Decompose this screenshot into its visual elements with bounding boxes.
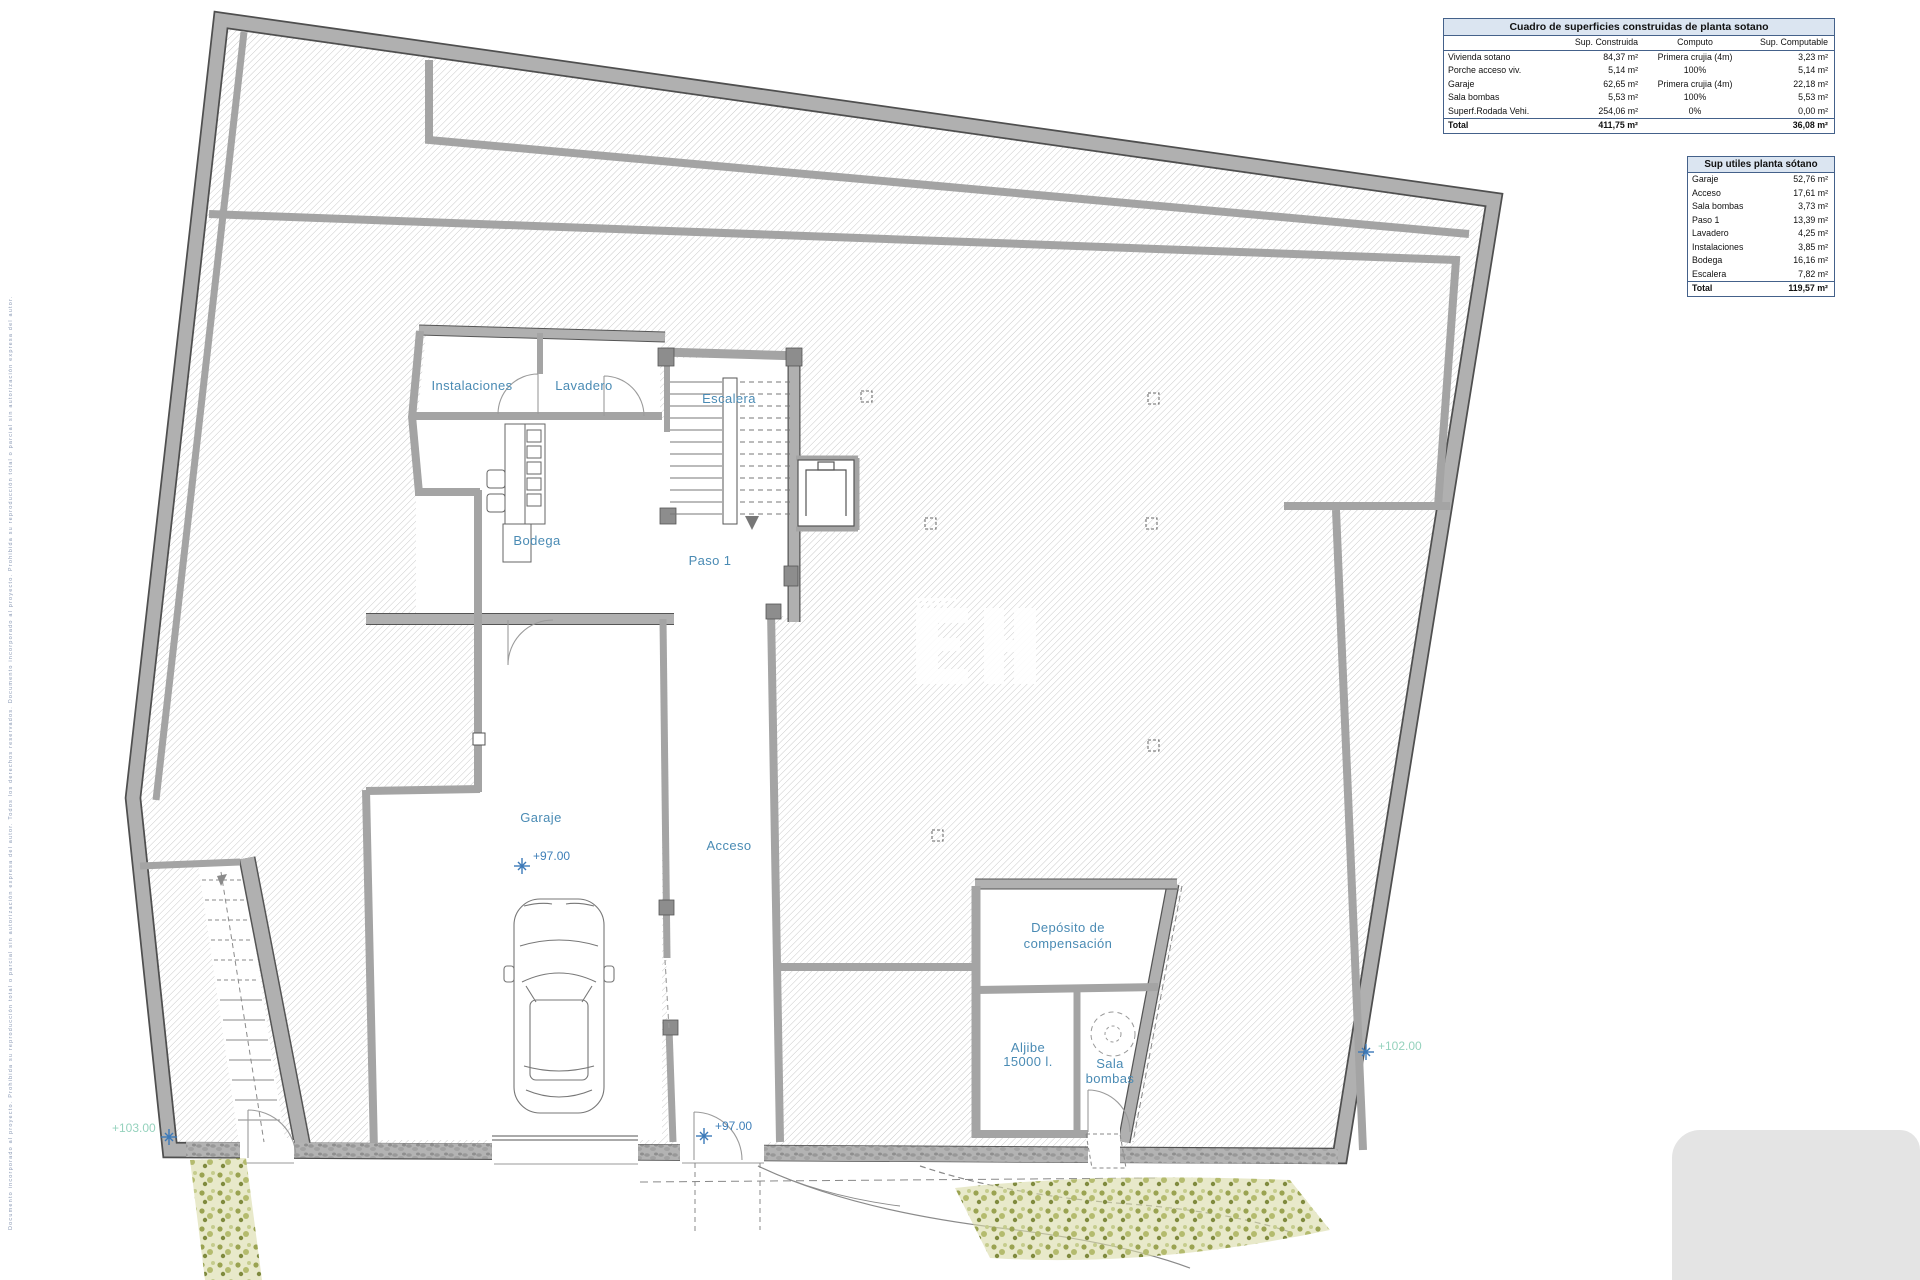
table1-title: Cuadro de superficies construidas de pla… (1444, 19, 1834, 36)
label-bodega: Bodega (513, 533, 561, 548)
table-row: Porche acceso viv. 5,14 m² 100% 5,14 m² (1444, 64, 1834, 78)
label-paso: Paso 1 (689, 553, 732, 568)
plan-sheet: Instalaciones Lavadero Escalera Bodega P… (0, 0, 1920, 1280)
table-row: Garaje 62,65 m² Primera crujia (4m) 22,1… (1444, 78, 1834, 92)
label-instalaciones: Instalaciones (431, 378, 512, 393)
table2-title: Sup utiles planta sótano (1688, 157, 1834, 173)
table-sup-utiles: Sup utiles planta sótano Garaje 52,76 m²… (1687, 156, 1835, 297)
table1-col-computo: Computo (1642, 36, 1748, 50)
label-lavadero: Lavadero (555, 378, 612, 393)
label-deposito-1: Depósito de (1031, 920, 1105, 935)
table-row: Sala bombas 3,73 m² (1688, 200, 1834, 214)
label-acceso: Acceso (706, 838, 751, 853)
table1-col-sup-computable: Sup. Computable (1748, 36, 1832, 50)
table-row: Vivienda sotano 84,37 m² Primera crujia … (1444, 51, 1834, 65)
label-garaje: Garaje (520, 810, 561, 825)
table-row: Instalaciones 3,85 m² (1688, 241, 1834, 255)
level-garaje: +97.00 (533, 849, 570, 863)
table-superficies-construidas: Cuadro de superficies construidas de pla… (1443, 18, 1835, 134)
label-sala-2: bombas (1086, 1071, 1135, 1086)
label-sala-1: Sala (1096, 1056, 1124, 1071)
table-row: Garaje 52,76 m² (1688, 173, 1834, 187)
table1-header-row: Sup. Construida Computo Sup. Computable (1444, 36, 1834, 51)
floor-plan: Instalaciones Lavadero Escalera Bodega P… (0, 0, 1920, 1280)
car-top-view (504, 899, 614, 1113)
label-deposito-2: compensación (1024, 936, 1113, 951)
table-row: Acceso 17,61 m² (1688, 187, 1834, 201)
level-salida: +97.00 (715, 1119, 752, 1133)
table-row: Escalera 7,82 m² (1688, 268, 1834, 282)
margin-vertical-text: Documento incorporado al proyecto. Prohi… (8, 50, 14, 1230)
table1-total-row: Total 411,75 m² 36,08 m² (1444, 118, 1834, 133)
elevator-icon (798, 460, 854, 526)
table-row: Lavadero 4,25 m² (1688, 227, 1834, 241)
table-row: Superf.Rodada Vehi. 254,06 m² 0% 0,00 m² (1444, 105, 1834, 119)
table-row: Paso 1 13,39 m² (1688, 214, 1834, 228)
label-aljibe-2: 15000 l. (1003, 1054, 1052, 1069)
label-escalera: Escalera (702, 391, 756, 406)
level-este: +102.00 (1378, 1039, 1422, 1053)
label-aljibe-1: Aljibe (1011, 1040, 1045, 1055)
plot-hatched-area (133, 20, 1494, 1156)
table-row: Bodega 16,16 m² (1688, 254, 1834, 268)
level-oeste: +103.00 (112, 1121, 156, 1135)
table-row: Sala bombas 5,53 m² 100% 5,53 m² (1444, 91, 1834, 105)
masked-logo-block (1672, 1130, 1920, 1280)
table2-total-row: Total 119,57 m² (1688, 281, 1834, 296)
garage-detail-square (473, 733, 485, 745)
table1-col-sup-construida: Sup. Construida (1550, 36, 1642, 50)
